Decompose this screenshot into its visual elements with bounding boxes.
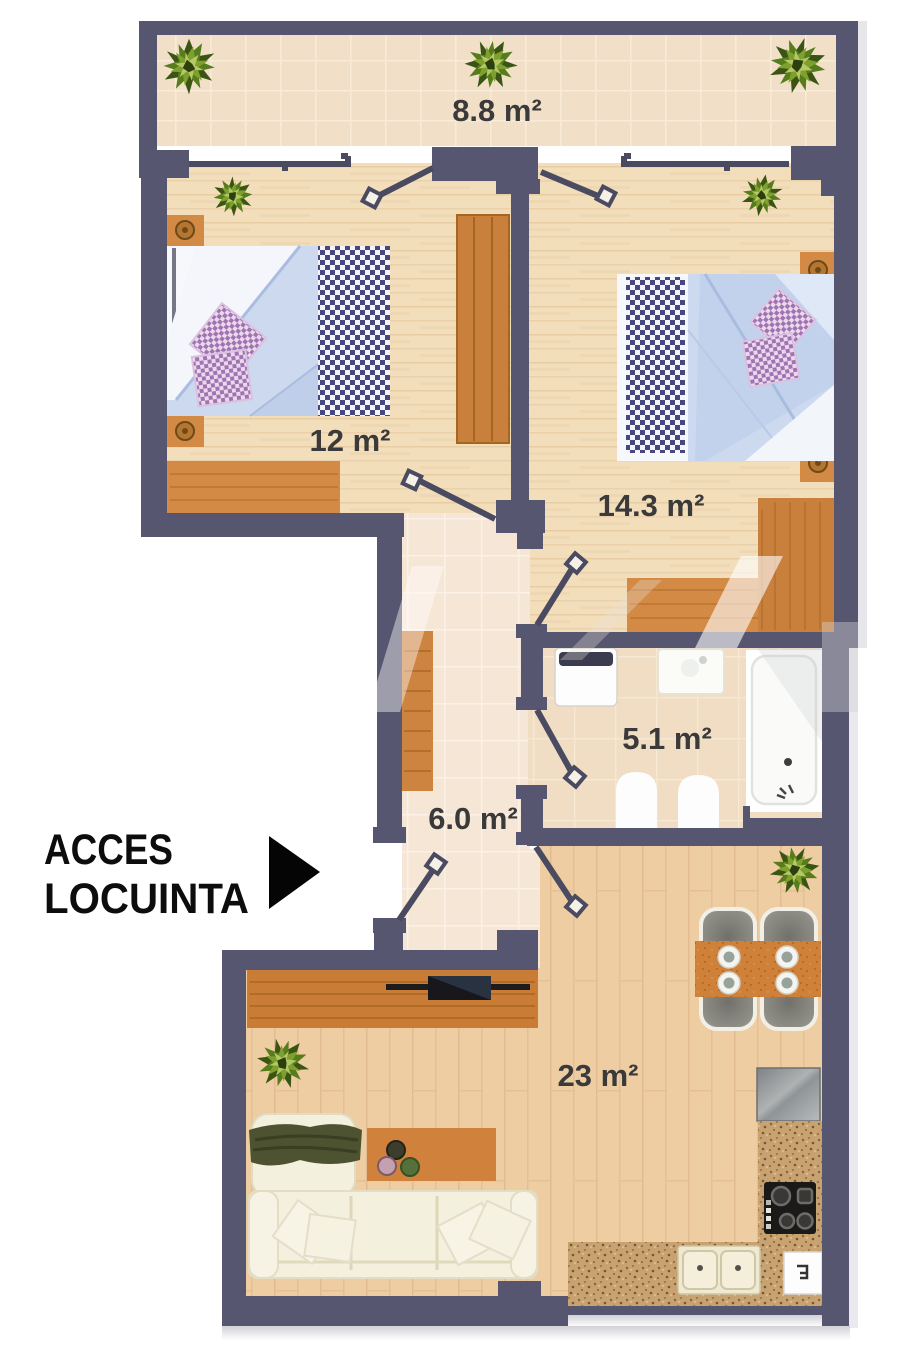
- svg-text:5.1 m²: 5.1 m²: [622, 721, 712, 756]
- svg-text:6.0 m²: 6.0 m²: [428, 801, 518, 836]
- svg-text:LOCUINTA: LOCUINTA: [44, 875, 249, 923]
- svg-text:ACCES: ACCES: [44, 826, 173, 874]
- svg-text:23 m²: 23 m²: [558, 1058, 639, 1093]
- svg-text:14.3 m²: 14.3 m²: [598, 488, 705, 523]
- svg-text:8.8 m²: 8.8 m²: [452, 93, 542, 128]
- svg-text:12 m²: 12 m²: [310, 423, 391, 458]
